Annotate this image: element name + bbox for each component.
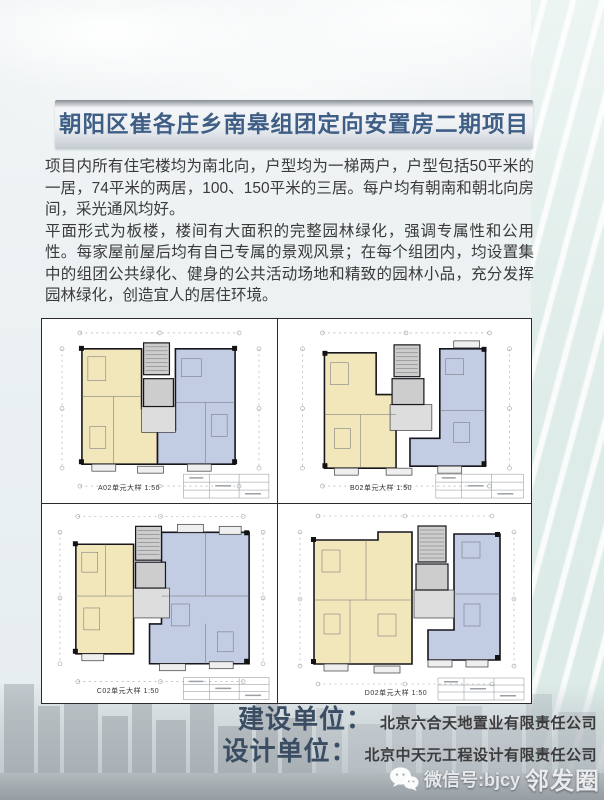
- corridor: [414, 590, 454, 618]
- floor-plan-d-drawing: [278, 504, 531, 703]
- stair-core: [144, 343, 174, 407]
- intro-paragraph-2: 平面形式为板楼，楼间有大面积的完整园林绿化，强调专属性和公用性。每家屋前屋后均有…: [45, 221, 534, 307]
- wechat-footer: 微信号:bjcy 邻发圈: [389, 761, 600, 796]
- stair-core: [136, 526, 166, 588]
- corridor: [134, 588, 170, 618]
- designer-line: 设计单位： 北京中天元工程设计有限责任公司: [222, 731, 597, 763]
- floor-plan-a-drawing: [42, 319, 277, 503]
- intro-text: 项目内所有住宅楼均为南北向，户型均为一梯两户，户型包括50平米的一居，74平米的…: [45, 156, 534, 307]
- floor-plan-caption: A02单元大样 1:50: [68, 483, 190, 493]
- right-decor-band: [531, 0, 604, 800]
- balconies: [92, 464, 211, 473]
- intro-paragraph-1: 项目内所有住宅楼均为南北向，户型均为一梯两户，户型包括50平米的一居，74平米的…: [45, 156, 534, 221]
- builder-line: 建设单位： 北京六合天地置业有限责任公司: [222, 699, 597, 731]
- builder-name: 北京六合天地置业有限责任公司: [380, 712, 597, 733]
- designer-label: 设计单位：: [222, 731, 357, 768]
- floor-plan-panel-b: B02单元大样 1:50: [278, 319, 531, 504]
- unit-left-yellow: [76, 544, 134, 654]
- floor-plan-caption: C02单元大样 1:50: [66, 686, 190, 696]
- unit-left-yellow: [314, 532, 412, 664]
- page-title: 朝阳区崔各庄乡南皋组团定向安置房二期项目: [55, 100, 533, 149]
- wechat-icon: [389, 766, 419, 792]
- floor-plan-c-drawing: [42, 504, 277, 703]
- spec-table: [183, 678, 269, 700]
- floor-plan-panel-a: A02单元大样 1:50: [42, 319, 278, 504]
- credits-block: 建设单位： 北京六合天地置业有限责任公司 设计单位： 北京中天元工程设计有限责任…: [222, 699, 597, 763]
- wechat-brand-text: 邻发圈: [525, 761, 600, 796]
- wechat-id-text: 微信号:bjcy: [424, 766, 520, 792]
- floor-plan-caption: D02单元大样 1:50: [326, 688, 466, 698]
- stair-core: [392, 345, 424, 405]
- floor-plan-panel-c: C02单元大样 1:50: [42, 504, 278, 703]
- floor-plan-caption: B02单元大样 1:50: [316, 483, 446, 493]
- corridor: [142, 407, 176, 433]
- poster-page: 朝阳区崔各庄乡南皋组团定向安置房二期项目 项目内所有住宅楼均为南北向，户型均为一…: [0, 0, 604, 800]
- floor-plan-panel-d: D02单元大样 1:50: [278, 504, 531, 703]
- floor-plan-grid: A02单元大样 1:50: [41, 318, 532, 704]
- floor-plan-b-drawing: [278, 319, 531, 503]
- stair-core: [416, 526, 448, 590]
- title-banner: 朝阳区崔各庄乡南皋组团定向安置房二期项目: [55, 100, 533, 149]
- corridor: [390, 405, 432, 431]
